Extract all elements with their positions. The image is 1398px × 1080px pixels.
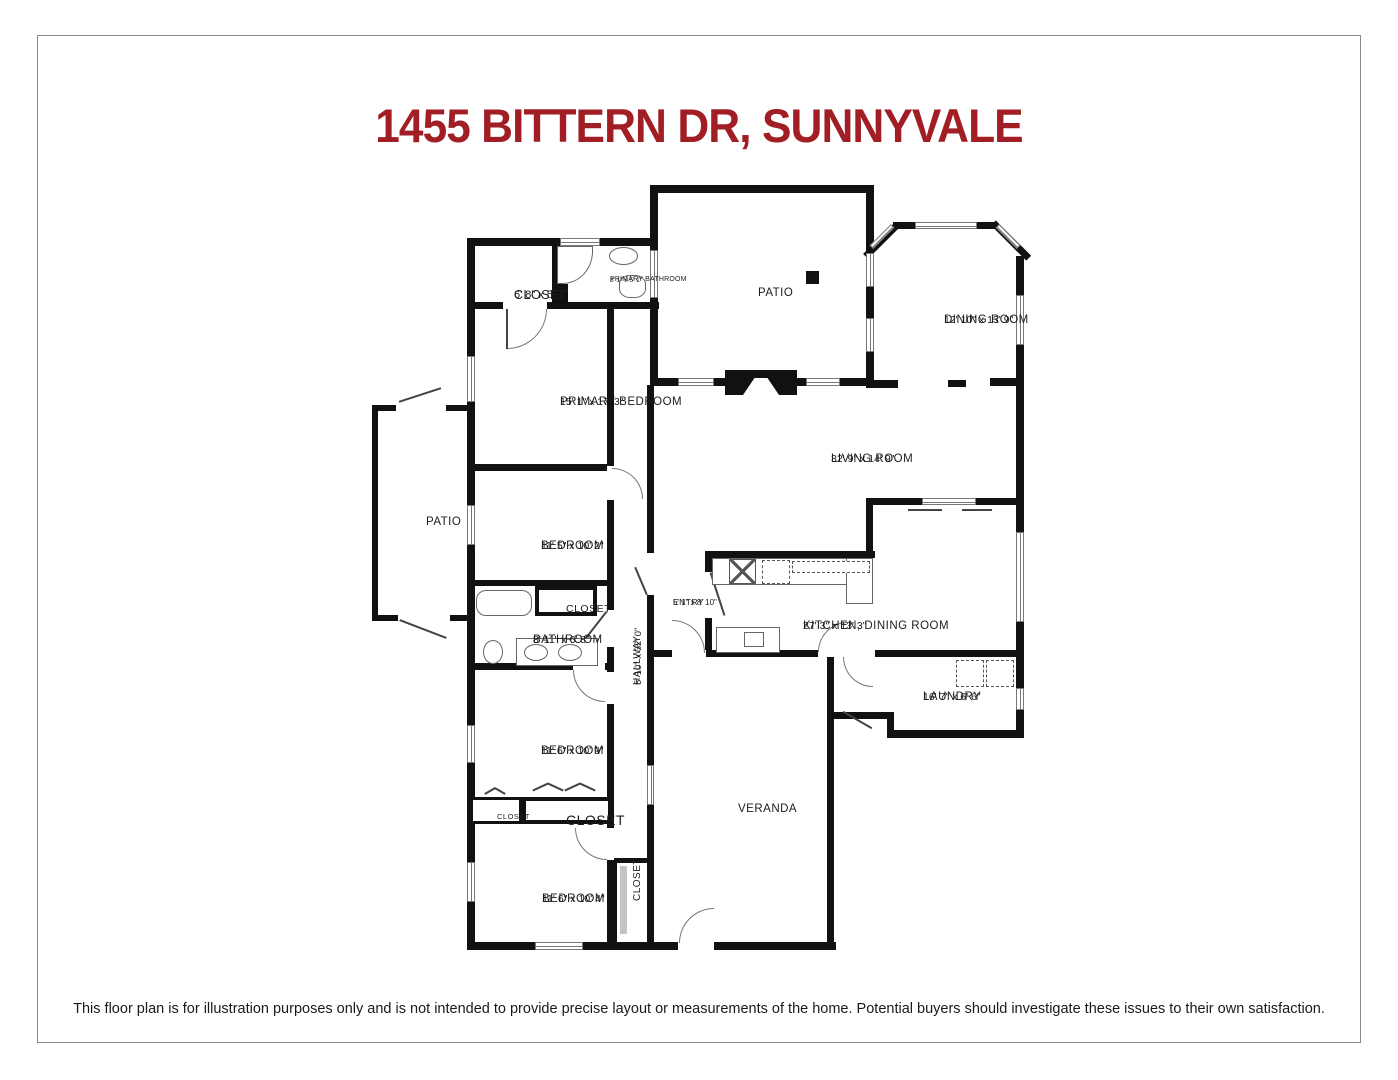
- wall-segment: [830, 712, 892, 719]
- window-glass-line: [471, 357, 472, 401]
- door-opening: [678, 942, 714, 950]
- door-opening: [396, 405, 446, 411]
- window-glass-line: [679, 382, 713, 383]
- door-swing-arc: [507, 309, 547, 349]
- washer: [956, 660, 984, 687]
- wall-segment: [887, 730, 1024, 738]
- window: [650, 250, 658, 298]
- wall-segment: [990, 378, 1024, 386]
- window: [915, 222, 977, 229]
- toilet: [483, 640, 503, 664]
- kitchen-sink: [744, 632, 764, 647]
- window: [560, 238, 600, 246]
- window-glass-line: [1020, 533, 1021, 621]
- door-leaf-line: [506, 309, 508, 349]
- window-glass-line: [471, 726, 472, 762]
- floor-plan: CLOSET 6' 8" x 5' 1" PRIMARY BATHROOM 8'…: [0, 0, 1398, 1080]
- window-glass-line: [916, 226, 976, 227]
- window-glass-line: [651, 766, 652, 804]
- window-glass-line: [654, 251, 655, 297]
- closet-rod: [620, 866, 627, 934]
- door-leaf-line: [634, 567, 648, 595]
- door-swing-arc: [573, 670, 605, 702]
- window-glass-line: [807, 382, 839, 383]
- floor-plan-page: 1455 BITTERN DR, SUNNYVALE CLOSET 6' 8" …: [0, 0, 1398, 1080]
- door-leaf-line: [962, 509, 992, 511]
- counter-dashed: [792, 561, 870, 573]
- door-leaf-line: [399, 387, 441, 402]
- door-swing-arc: [843, 657, 873, 687]
- wall-segment: [650, 185, 874, 193]
- wall-segment: [467, 238, 475, 950]
- patio-post: [806, 271, 819, 284]
- window: [647, 765, 654, 805]
- window: [467, 725, 475, 763]
- dryer: [986, 660, 1014, 687]
- door-opening: [398, 615, 450, 621]
- door-swing-arc: [672, 620, 705, 653]
- wall-segment: [827, 655, 834, 950]
- window: [535, 942, 583, 950]
- door-swing-arc: [575, 828, 607, 860]
- door-opening: [647, 553, 654, 595]
- window-glass-line: [1020, 689, 1021, 709]
- window: [922, 498, 976, 505]
- window: [467, 356, 475, 402]
- wall-segment: [467, 464, 614, 471]
- wall-segment: [647, 385, 654, 950]
- door-leaf-line: [547, 783, 563, 792]
- window: [806, 378, 840, 386]
- window-glass-line: [471, 506, 472, 544]
- window: [1016, 688, 1024, 710]
- window: [866, 318, 874, 352]
- door-opening: [607, 672, 614, 704]
- wall-segment: [948, 380, 966, 387]
- wall-segment: [372, 405, 378, 621]
- door-leaf-line: [494, 787, 505, 795]
- window: [467, 505, 475, 545]
- window-glass-line: [870, 319, 871, 351]
- door-opening: [845, 650, 875, 657]
- window-glass-line: [536, 946, 582, 947]
- window-glass-line: [561, 242, 599, 243]
- door-swing-arc: [612, 468, 643, 499]
- door-leaf-line: [908, 509, 942, 511]
- wall-segment: [866, 380, 898, 388]
- window: [866, 253, 874, 287]
- wall-segment: [612, 858, 617, 950]
- window-glass-line: [997, 227, 1018, 248]
- window-glass-line: [923, 502, 975, 503]
- counter-dashed: [762, 560, 790, 584]
- stove-hatch-icon: [729, 559, 756, 584]
- bathtub: [476, 590, 532, 616]
- window-glass-line: [870, 254, 871, 286]
- window-glass-line: [471, 863, 472, 901]
- window-angled: [996, 224, 1021, 249]
- door-leaf-line: [399, 619, 446, 639]
- disclaimer-text: This floor plan is for illustration purp…: [0, 1001, 1398, 1017]
- wall-segment: [866, 498, 873, 558]
- window: [678, 378, 714, 386]
- door-swing-arc: [679, 908, 714, 943]
- door-opening: [607, 828, 614, 860]
- wall-segment: [705, 551, 875, 558]
- window: [467, 862, 475, 902]
- door-leaf-line: [579, 783, 595, 792]
- shower: [557, 246, 593, 284]
- window: [1016, 532, 1024, 622]
- sink: [609, 247, 638, 265]
